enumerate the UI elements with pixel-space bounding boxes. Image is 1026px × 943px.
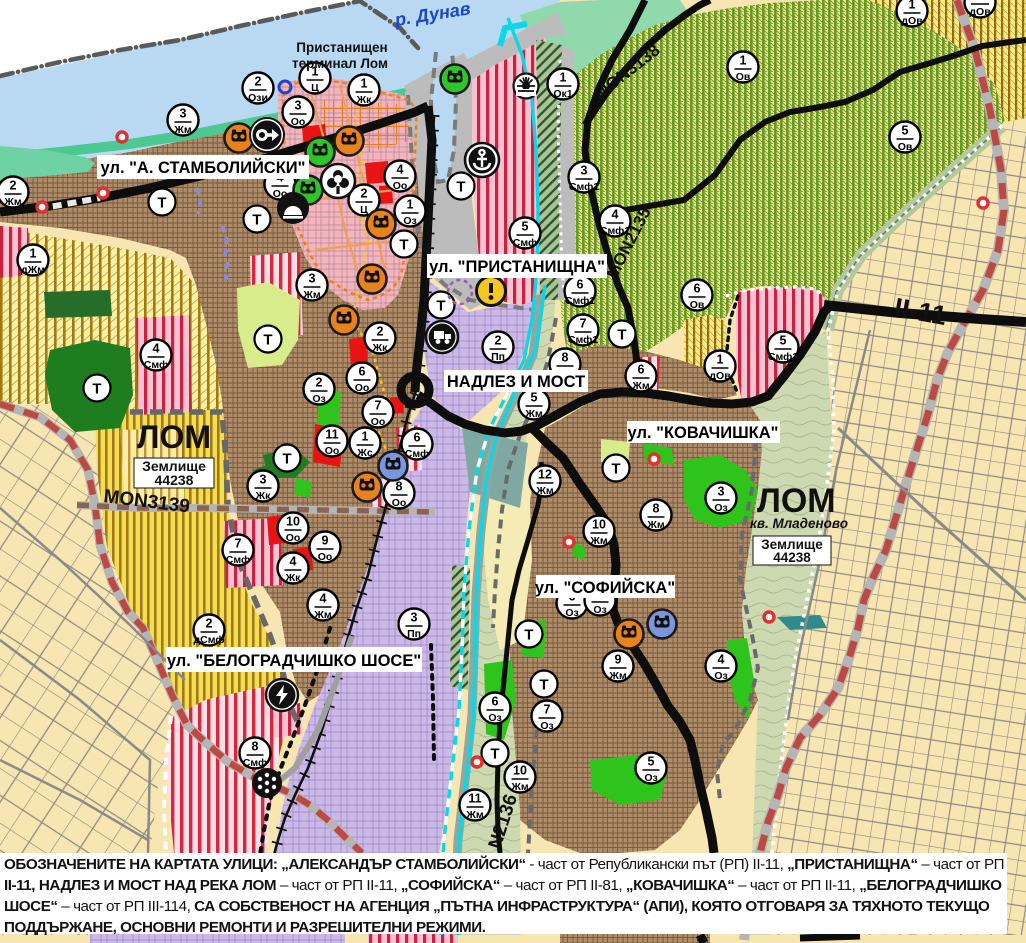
svg-text:Оо: Оо	[393, 180, 408, 192]
svg-text:Жк: Жк	[372, 342, 388, 354]
svg-text:3: 3	[295, 99, 302, 113]
svg-text:Смф1: Смф1	[565, 295, 595, 307]
svg-text:Жм: Жм	[631, 380, 649, 392]
svg-text:Пристанищен: Пристанищен	[296, 40, 387, 55]
svg-text:Смф: Смф	[226, 554, 250, 566]
svg-text:Жм: Жм	[535, 485, 553, 497]
svg-text:Т: Т	[524, 627, 533, 644]
svg-text:Оз: Оз	[714, 670, 727, 682]
svg-text:ул. "СОФИЙСКА": ул. "СОФИЙСКА"	[535, 578, 675, 597]
svg-text:4: 4	[718, 653, 725, 667]
svg-text:10: 10	[286, 515, 300, 529]
svg-text:Ц: Ц	[311, 82, 319, 94]
svg-text:Оо: Оо	[325, 445, 340, 457]
svg-text:Т: Т	[282, 451, 291, 468]
svg-text:дЖм: дЖм	[21, 264, 45, 276]
svg-text:Смф: Смф	[405, 448, 429, 460]
svg-text:ПОДДЪРЖАНЕ, ОСНОВНИ РЕМОНТИ И: ПОДДЪРЖАНЕ, ОСНОВНИ РЕМОНТИ И РАЗРЕШИТЕЛ…	[4, 919, 486, 936]
svg-text:Ов: Ов	[736, 71, 751, 83]
svg-text:3: 3	[718, 485, 725, 499]
svg-text:ул. "КОВАЧИШКА": ул. "КОВАЧИШКА"	[628, 424, 779, 442]
svg-text:II-11, НАДЛЕЗ И МОСТ НАД РЕКА: II-11, НАДЛЕЗ И МОСТ НАД РЕКА ЛОМ – част…	[4, 876, 1002, 894]
svg-text:3: 3	[309, 272, 316, 286]
svg-text:6: 6	[492, 695, 499, 709]
svg-text:дОв: дОв	[969, 6, 991, 18]
svg-text:Жм: Жм	[173, 124, 191, 136]
svg-text:2: 2	[10, 179, 17, 193]
svg-text:Жм: Жм	[465, 809, 483, 821]
svg-text:1: 1	[362, 430, 369, 444]
svg-text:Оз: Оз	[644, 772, 657, 784]
svg-text:дСмф: дСмф	[193, 634, 224, 646]
svg-text:Жм: Жм	[608, 670, 626, 682]
svg-text:Т: Т	[157, 195, 166, 212]
svg-text:Т: Т	[456, 179, 465, 196]
svg-text:12: 12	[538, 468, 552, 482]
svg-text:7: 7	[544, 703, 551, 717]
svg-text:5: 5	[522, 220, 529, 234]
svg-text:5: 5	[648, 755, 655, 769]
svg-text:НАДЛЕЗ И МОСТ: НАДЛЕЗ И МОСТ	[447, 373, 585, 391]
svg-text:Т: Т	[436, 298, 445, 315]
svg-text:2: 2	[316, 376, 323, 390]
svg-text:4: 4	[320, 592, 327, 606]
svg-text:44238: 44238	[155, 472, 194, 488]
svg-text:Жм: Жм	[589, 535, 607, 547]
svg-text:1: 1	[909, 0, 916, 12]
svg-text:Оз: Оз	[714, 502, 727, 514]
svg-text:3: 3	[180, 107, 187, 121]
svg-text:8: 8	[252, 740, 259, 754]
svg-text:1: 1	[740, 54, 747, 68]
svg-text:Жм: Жм	[524, 408, 542, 420]
svg-text:Ов: Ов	[690, 299, 705, 311]
svg-text:10: 10	[592, 518, 606, 532]
svg-text:Т: Т	[399, 237, 408, 254]
svg-text:2: 2	[377, 325, 384, 339]
svg-text:Оо: Оо	[392, 497, 407, 509]
svg-text:2: 2	[206, 617, 213, 631]
svg-text:9: 9	[615, 653, 622, 667]
svg-text:7: 7	[580, 317, 587, 331]
svg-text:ОБОЗНАЧЕНИТЕ НА КАРТАТА УЛИЦИ:: ОБОЗНАЧЕНИТЕ НА КАРТАТА УЛИЦИ: „АЛЕКСАНД…	[4, 855, 1004, 873]
svg-text:1: 1	[560, 71, 567, 85]
svg-text:1: 1	[717, 353, 724, 367]
svg-text:Т: Т	[617, 327, 626, 344]
svg-text:3: 3	[581, 164, 588, 178]
svg-text:9: 9	[322, 534, 329, 548]
svg-text:Оз: Оз	[488, 712, 501, 724]
svg-text:5: 5	[531, 391, 538, 405]
svg-text:4: 4	[153, 342, 160, 356]
svg-text:Жм: Жм	[646, 519, 664, 531]
svg-text:дОв: дОв	[709, 370, 731, 382]
svg-text:Пп: Пп	[407, 628, 421, 640]
svg-text:Жс: Жс	[356, 447, 372, 459]
svg-text:ЛОМ: ЛОМ	[137, 419, 211, 455]
svg-text:Жм: Жм	[510, 781, 528, 793]
svg-text:2: 2	[361, 187, 368, 201]
svg-text:Смф1: Смф1	[768, 351, 798, 363]
svg-text:6: 6	[577, 278, 584, 292]
svg-text:Оз: Оз	[540, 720, 553, 732]
svg-text:Т: Т	[92, 381, 101, 398]
svg-text:Смф: Смф	[513, 237, 537, 249]
svg-text:Т: Т	[252, 212, 261, 229]
svg-text:1: 1	[30, 247, 37, 261]
svg-text:11: 11	[325, 428, 338, 442]
svg-text:6: 6	[638, 363, 645, 377]
svg-text:Оз: Оз	[312, 393, 325, 405]
svg-text:Т: Т	[539, 677, 548, 694]
svg-text:ШОСЕ“ – част от РП III-114, СА: ШОСЕ“ – част от РП III-114, СА СОБСТВЕНО…	[4, 898, 990, 915]
svg-text:Жм: Жм	[302, 289, 320, 301]
svg-text:Ози: Ози	[248, 92, 268, 104]
svg-text:8: 8	[653, 502, 660, 516]
svg-text:1: 1	[361, 77, 368, 91]
svg-text:44238: 44238	[773, 550, 811, 565]
svg-text:Т: Т	[490, 746, 499, 763]
svg-text:Жк: Жк	[285, 572, 301, 584]
svg-text:Жм: Жм	[313, 609, 331, 621]
svg-text:Оо: Оо	[291, 116, 306, 128]
svg-text:Жм: Жм	[3, 196, 21, 208]
svg-text:Ц: Ц	[360, 204, 368, 216]
svg-text:3: 3	[411, 611, 418, 625]
svg-text:Смф1: Смф1	[568, 334, 598, 346]
svg-text:Оо: Оо	[371, 416, 386, 428]
svg-text:Ок1: Ок1	[553, 88, 572, 100]
svg-text:терминал Лом: терминал Лом	[292, 56, 388, 71]
svg-text:ЛОМ: ЛОМ	[757, 482, 836, 520]
svg-text:3: 3	[260, 473, 267, 487]
svg-text:Пп: Пп	[491, 351, 505, 363]
svg-text:кв. Младеново: кв. Младеново	[750, 516, 848, 531]
svg-text:5: 5	[780, 334, 787, 348]
svg-text:ул. "ПРИСТАНИЩНА": ул. "ПРИСТАНИЩНА"	[429, 258, 605, 276]
svg-text:ул. "БЕЛОГРАДЧИШКО ШОСЕ": ул. "БЕЛОГРАДЧИШКО ШОСЕ"	[167, 652, 421, 670]
svg-text:Оо: Оо	[286, 532, 301, 544]
svg-text:Смф: Смф	[243, 757, 267, 769]
svg-text:6: 6	[414, 431, 421, 445]
svg-text:2: 2	[495, 334, 502, 348]
svg-text:4: 4	[290, 555, 297, 569]
svg-text:10: 10	[513, 764, 527, 778]
svg-text:дОв: дОв	[901, 15, 923, 27]
svg-text:Смф: Смф	[144, 359, 168, 371]
svg-text:Оз: Оз	[593, 604, 606, 616]
svg-text:Оо: Оо	[318, 551, 333, 563]
svg-text:8: 8	[396, 480, 403, 494]
svg-text:Т: Т	[263, 332, 272, 349]
svg-text:8: 8	[562, 351, 569, 365]
svg-text:Жк: Жк	[255, 490, 271, 502]
svg-text:4: 4	[397, 163, 404, 177]
svg-text:Оо: Оо	[355, 382, 370, 394]
svg-text:7: 7	[235, 537, 242, 551]
svg-text:4: 4	[612, 208, 619, 222]
svg-text:11: 11	[468, 792, 481, 806]
svg-text:6: 6	[359, 365, 366, 379]
svg-text:ул. "А. СТАМБОЛИЙСКИ": ул. "А. СТАМБОЛИЙСКИ"	[101, 158, 306, 177]
svg-text:Ов: Ов	[898, 141, 913, 153]
svg-text:7: 7	[375, 399, 382, 413]
svg-text:Смф1: Смф1	[569, 181, 599, 193]
svg-text:Оз: Оз	[565, 607, 578, 619]
svg-text:2: 2	[255, 75, 262, 89]
svg-text:6: 6	[694, 282, 701, 296]
svg-text:1: 1	[407, 198, 414, 212]
svg-text:Т: Т	[611, 461, 620, 478]
svg-text:Жк: Жк	[356, 94, 372, 106]
svg-text:5: 5	[902, 124, 909, 138]
svg-text:Оз: Оз	[403, 215, 416, 227]
